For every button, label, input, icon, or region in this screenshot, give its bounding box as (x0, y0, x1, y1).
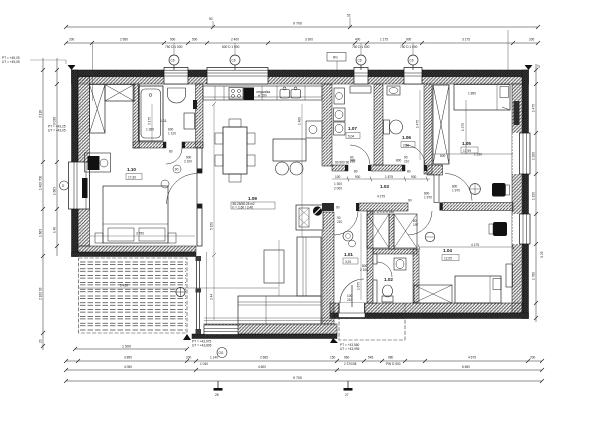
svg-text:2 100: 2 100 (360, 268, 368, 272)
svg-text:175 173 175 186: 175 173 175 186 (370, 210, 394, 214)
svg-text:1 150: 1 150 (532, 192, 536, 200)
svg-text:1 400 700: 1 400 700 (39, 176, 43, 190)
svg-text:C6: C6 (171, 59, 175, 63)
svg-text:1.06: 1.06 (402, 135, 411, 140)
svg-text:C6: C6 (232, 59, 236, 63)
svg-text:50: 50 (209, 17, 213, 21)
svg-text:750 D 1 500: 750 D 1 500 (352, 45, 370, 49)
svg-text:150: 150 (330, 356, 336, 360)
svg-text:90: 90 (336, 206, 340, 210)
svg-text:1.04: 1.04 (443, 248, 452, 253)
svg-text:3 750: 3 750 (136, 232, 144, 236)
svg-text:C6: C6 (358, 59, 362, 63)
svg-text:17,99: 17,99 (463, 149, 471, 153)
svg-text:1 970: 1 970 (424, 196, 432, 200)
svg-text:1 663: 1 663 (39, 229, 43, 237)
svg-text:2 950: 2 950 (120, 38, 128, 42)
svg-text:960: 960 (344, 356, 350, 360)
svg-text:1 970: 1 970 (452, 189, 460, 193)
svg-text:4 600: 4 600 (258, 365, 266, 369)
svg-text:1.02: 1.02 (384, 277, 393, 282)
svg-text:h = 2,60 / 3,46: h = 2,60 / 3,46 (233, 205, 254, 209)
svg-text:12,05: 12,05 (444, 256, 452, 260)
svg-text:210: 210 (347, 298, 353, 302)
svg-text:80: 80 (354, 170, 358, 174)
svg-text:2 665: 2 665 (260, 356, 268, 360)
svg-text:4 175: 4 175 (471, 243, 479, 247)
svg-text:UT = +43,05: UT = +43,05 (48, 129, 66, 133)
svg-text:C6: C6 (410, 59, 414, 63)
svg-text:900: 900 (170, 38, 176, 42)
svg-text:200: 200 (529, 38, 535, 42)
svg-text:1 140: 1 140 (210, 356, 218, 360)
svg-text:200: 200 (69, 38, 75, 42)
svg-text:1 200: 1 200 (532, 152, 536, 160)
svg-text:210: 210 (337, 220, 343, 224)
svg-text:1 475: 1 475 (532, 104, 536, 112)
svg-text:1 875: 1 875 (385, 175, 393, 179)
svg-text:750 D 1 500: 750 D 1 500 (165, 45, 183, 49)
svg-text:900: 900 (406, 38, 412, 42)
svg-text:3 850: 3 850 (124, 356, 132, 360)
svg-text:1.05: 1.05 (462, 141, 471, 146)
svg-text:2 370/08: 2 370/08 (344, 362, 357, 366)
svg-text:600 D 1 500: 600 D 1 500 (222, 45, 240, 49)
svg-text:UT = +45,05: UT = +45,05 (2, 60, 20, 64)
svg-text:27: 27 (345, 393, 349, 397)
svg-text:RG: RG (333, 56, 338, 60)
svg-text:1.01: 1.01 (344, 252, 353, 257)
svg-text:1.10: 1.10 (127, 167, 136, 172)
svg-text:1 400: 1 400 (298, 117, 302, 125)
svg-text:17,30: 17,30 (128, 175, 136, 179)
svg-text:PW D 500: PW D 500 (386, 362, 401, 366)
svg-text:1.03: 1.03 (380, 184, 389, 189)
svg-text:1 450: 1 450 (120, 284, 128, 288)
svg-text:1 120: 1 120 (168, 132, 176, 136)
svg-text:900: 900 (355, 175, 361, 179)
svg-text:900: 900 (411, 175, 417, 179)
svg-text:2 400: 2 400 (231, 38, 239, 42)
svg-text:1 500: 1 500 (122, 345, 131, 349)
svg-text:4 675: 4 675 (468, 356, 476, 360)
svg-text:90: 90 (408, 199, 412, 203)
svg-text:4 275: 4 275 (377, 195, 385, 199)
svg-text:1 175: 1 175 (380, 38, 388, 42)
svg-text:80: 80 (407, 170, 411, 174)
svg-text:5 150: 5 150 (210, 222, 214, 230)
svg-text:1 875: 1 875 (357, 282, 361, 290)
svg-text:400: 400 (355, 38, 361, 42)
svg-text:52: 52 (347, 14, 351, 18)
svg-text:9 700: 9 700 (293, 22, 302, 26)
svg-text:1 040: 1 040 (200, 362, 208, 366)
svg-text:OG: OG (218, 351, 223, 355)
svg-text:1 40: 1 40 (53, 227, 57, 233)
svg-text:2 000: 2 000 (334, 187, 342, 191)
svg-text:90: 90 (175, 167, 179, 171)
svg-text:1 360: 1 360 (146, 128, 154, 132)
svg-text:90 900 90: 90 900 90 (335, 161, 349, 165)
svg-text:800: 800 (396, 159, 402, 163)
svg-text:47: 47 (537, 64, 541, 68)
svg-text:100: 100 (335, 175, 341, 179)
svg-text:UT = +43,995: UT = +43,995 (340, 347, 360, 351)
svg-text:1 760: 1 760 (532, 272, 536, 280)
svg-text:4 050: 4 050 (124, 365, 132, 369)
svg-text:210: 210 (404, 160, 410, 164)
svg-text:1.07: 1.07 (348, 126, 357, 131)
svg-text:20: 20 (39, 339, 43, 343)
svg-text:6 650: 6 650 (462, 365, 470, 369)
svg-text:5,04: 5,04 (348, 134, 354, 138)
svg-text:3,91: 3,91 (345, 260, 351, 264)
svg-text:1 300: 1 300 (334, 182, 342, 186)
svg-text:197: 197 (413, 223, 419, 227)
svg-text:750 D 1 500: 750 D 1 500 (400, 45, 418, 49)
svg-text:w 200: w 200 (258, 94, 267, 98)
svg-text:1.09: 1.09 (248, 196, 257, 201)
svg-text:1 475: 1 475 (416, 120, 420, 128)
svg-text:1 975: 1 975 (461, 123, 465, 131)
svg-text:600: 600 (440, 154, 446, 158)
svg-text:28: 28 (215, 393, 219, 397)
svg-text:500: 500 (192, 38, 198, 42)
svg-text:980: 980 (388, 356, 394, 360)
svg-text:80: 80 (169, 150, 173, 154)
svg-text:3 175: 3 175 (462, 38, 470, 42)
svg-text:200: 200 (530, 356, 536, 360)
svg-text:1 663: 1 663 (53, 187, 57, 195)
svg-text:2 100: 2 100 (184, 160, 192, 164)
svg-text:9 700: 9 700 (293, 376, 302, 380)
svg-text:1 850: 1 850 (468, 92, 476, 96)
svg-text:S 25: S 25 (540, 251, 544, 258)
svg-text:200: 200 (186, 356, 192, 360)
svg-text:210: 210 (350, 160, 356, 164)
svg-text:3 118: 3 118 (39, 110, 43, 118)
svg-text:1 230: 1 230 (474, 153, 482, 157)
svg-text:545: 545 (368, 356, 374, 360)
svg-text:3 300: 3 300 (305, 38, 313, 42)
svg-text:UT = +43,805: UT = +43,805 (192, 344, 212, 348)
svg-text:2 44: 2 44 (210, 294, 214, 300)
svg-text:3 175: 3 175 (148, 117, 152, 125)
svg-text:2 100 03: 2 100 03 (39, 287, 43, 300)
